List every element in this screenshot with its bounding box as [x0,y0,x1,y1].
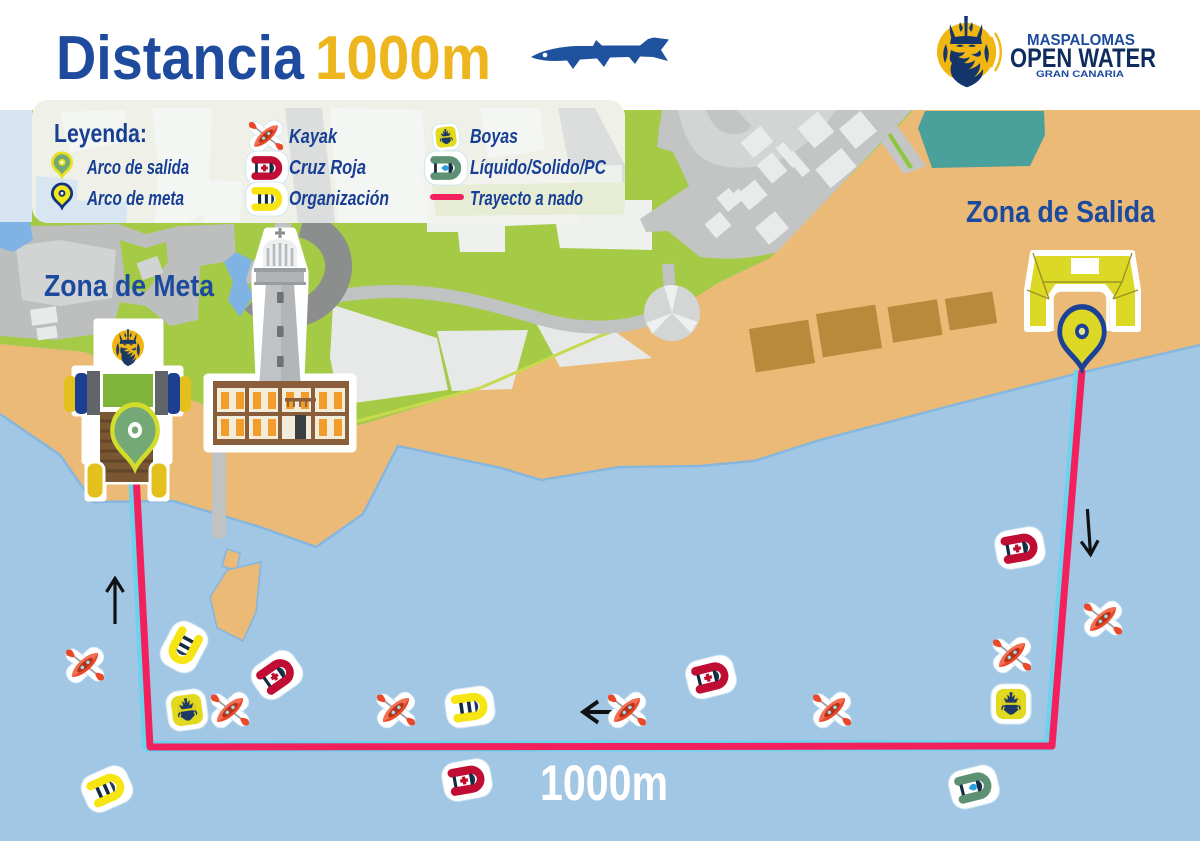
svg-text:Leyenda:: Leyenda: [54,118,147,148]
svg-text:1000m: 1000m [315,24,491,93]
svg-text:Zona de Meta: Zona de Meta [44,268,215,303]
svg-text:Boyas: Boyas [470,126,518,148]
svg-text:Trayecto a nado: Trayecto a nado [470,188,583,210]
svg-text:Organización: Organización [289,188,389,210]
svg-text:Zona de Salida: Zona de Salida [966,194,1156,229]
svg-text:Arco de salida: Arco de salida [86,157,189,179]
svg-text:1000m: 1000m [540,755,668,811]
svg-text:Arco de meta: Arco de meta [86,188,184,210]
svg-text:Cruz Roja: Cruz Roja [289,157,366,179]
svg-text:Distancia: Distancia [56,24,304,93]
svg-text:Kayak: Kayak [289,126,338,148]
svg-text:GRAN CANARIA: GRAN CANARIA [1036,69,1124,80]
svg-text:Líquido/Solido/PC: Líquido/Solido/PC [470,157,606,179]
